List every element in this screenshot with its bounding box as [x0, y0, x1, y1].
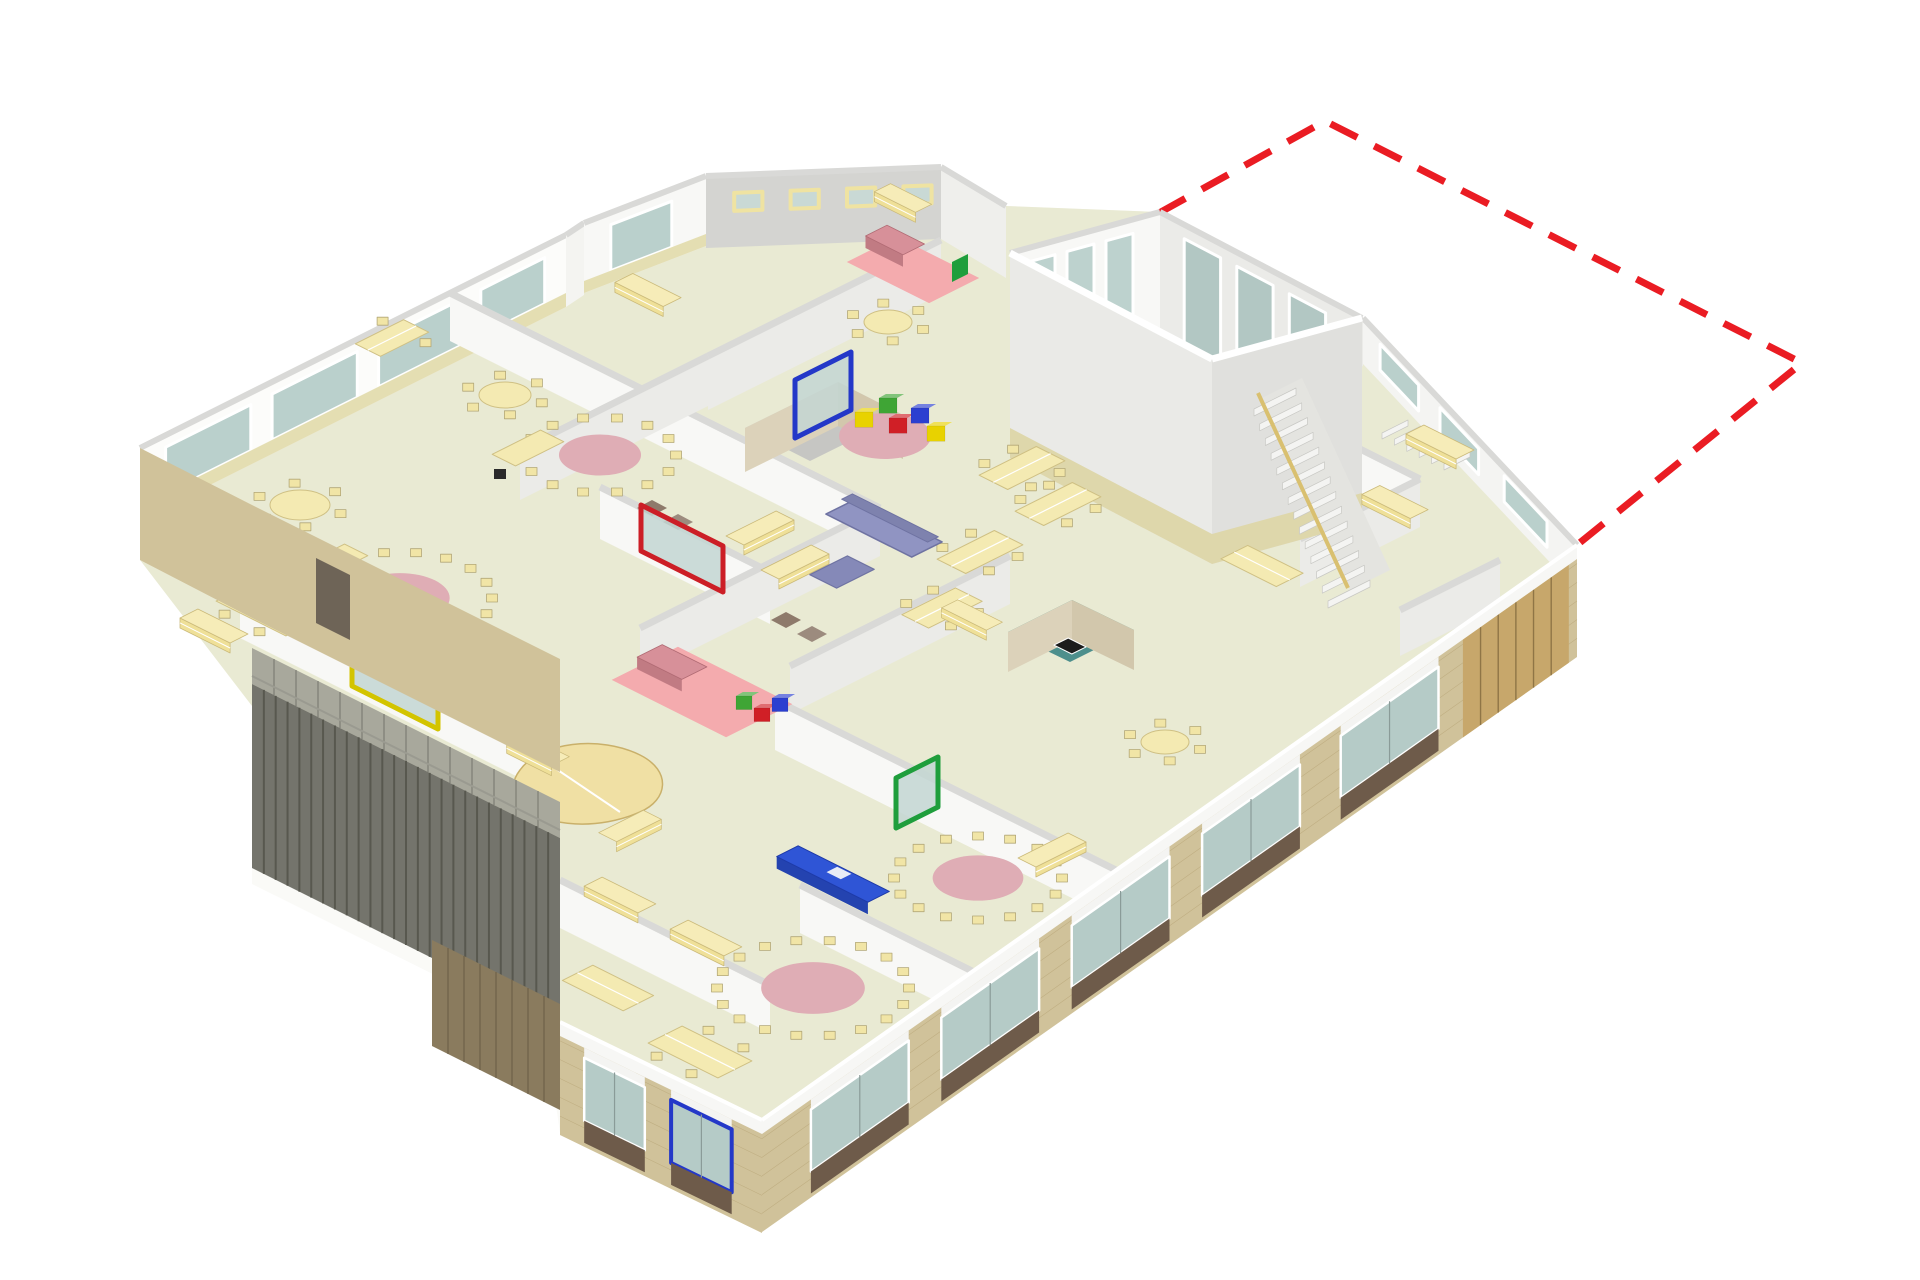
table-chair — [1054, 469, 1065, 477]
circle-chair — [1005, 835, 1016, 843]
circle-chair — [881, 1015, 892, 1023]
circle-chair — [717, 968, 728, 976]
circle-chair — [642, 481, 653, 489]
circle-chair — [895, 890, 906, 898]
circle-chair — [578, 488, 589, 496]
floorplan-scene — [0, 0, 1920, 1280]
round-table-chair — [300, 523, 311, 531]
round-table-chair — [852, 330, 863, 338]
circle-chair — [481, 610, 492, 618]
table-chair — [254, 628, 265, 636]
round-table-chair — [1155, 719, 1166, 727]
table-chair — [1015, 496, 1026, 504]
circle-chair — [481, 578, 492, 586]
circle-chair — [411, 549, 422, 557]
circle-chair — [1005, 913, 1016, 921]
circle-chair — [791, 1031, 802, 1039]
round-table-3 — [1141, 730, 1189, 754]
circle-chair — [487, 594, 498, 602]
circle-chair — [441, 554, 452, 562]
circle-chair — [940, 835, 951, 843]
circle-chair — [913, 904, 924, 912]
table-chair — [983, 567, 994, 575]
play-cube-0-1 — [879, 398, 897, 413]
north-wing-gray-wall-small-window-2 — [847, 188, 875, 207]
circle-chair — [526, 468, 537, 476]
table-chair — [979, 460, 990, 468]
circle-chair — [547, 421, 558, 429]
circle-chair — [1032, 904, 1043, 912]
circle-chair — [856, 942, 867, 950]
north-wing-gray-wall-small-window-1 — [791, 190, 819, 209]
pink-round-rug-3 — [933, 855, 1024, 900]
round-table-chair — [1164, 757, 1175, 765]
round-table-chair — [289, 479, 300, 487]
round-table-chair — [1190, 727, 1201, 735]
circle-chair — [734, 1015, 745, 1023]
circle-chair — [578, 414, 589, 422]
circle-chair — [824, 937, 835, 945]
circle-chair — [671, 451, 682, 459]
circle-chair — [465, 564, 476, 572]
table-chair — [1061, 519, 1072, 527]
round-table-chair — [887, 337, 898, 345]
round-table-2 — [864, 310, 912, 334]
table-chair — [1012, 553, 1023, 561]
circle-chair — [791, 937, 802, 945]
table-chair — [937, 544, 948, 552]
circle-chair — [717, 1000, 728, 1008]
circle-chair — [973, 916, 984, 924]
round-table-chair — [254, 492, 265, 500]
round-table-chair — [878, 299, 889, 307]
round-table-chair — [468, 403, 479, 411]
circle-chair — [760, 942, 771, 950]
round-table-chair — [1195, 745, 1206, 753]
table-chair — [703, 1026, 714, 1034]
circle-chair — [1057, 874, 1068, 882]
round-table-chair — [531, 379, 542, 387]
circle-chair — [889, 874, 900, 882]
table-chair — [1008, 445, 1019, 453]
round-table-chair — [536, 399, 547, 407]
round-table-chair — [913, 307, 924, 315]
circle-chair — [734, 953, 745, 961]
circle-chair — [1050, 890, 1061, 898]
circle-chair — [379, 549, 390, 557]
table-chair — [928, 586, 939, 594]
table-chair — [420, 339, 431, 347]
table-chair — [1090, 505, 1101, 513]
pink-round-rug-1 — [559, 434, 641, 475]
north-wing-gray-wall-small-window-0 — [734, 192, 762, 211]
circle-chair — [663, 435, 674, 443]
table-chair — [219, 610, 230, 618]
circle-chair — [611, 488, 622, 496]
circle-chair — [973, 832, 984, 840]
circle-chair — [547, 481, 558, 489]
circle-chair — [913, 844, 924, 852]
circle-chair — [881, 953, 892, 961]
circle-chair — [895, 858, 906, 866]
table-chair — [1025, 483, 1036, 491]
office-chair-1 — [494, 469, 506, 479]
table-chair — [738, 1044, 749, 1052]
floorplan-3d-view — [0, 0, 1920, 1280]
circle-chair — [898, 968, 909, 976]
round-table-chair — [848, 311, 859, 319]
round-table-chair — [463, 383, 474, 391]
table-chair — [686, 1070, 697, 1078]
play-cube-0-4 — [927, 426, 945, 441]
circle-chair — [898, 1000, 909, 1008]
circle-chair — [712, 984, 723, 992]
round-table-chair — [918, 325, 929, 333]
table-chair — [966, 529, 977, 537]
pink-round-rug-2 — [761, 962, 865, 1014]
round-table-chair — [1125, 731, 1136, 739]
play-cube-0-0 — [855, 412, 873, 427]
round-table-chair — [330, 488, 341, 496]
round-table-chair — [504, 411, 515, 419]
circle-chair — [856, 1026, 867, 1034]
circle-chair — [940, 913, 951, 921]
round-table-chair — [1129, 750, 1140, 758]
circle-chair — [760, 1026, 771, 1034]
play-cube-1-1 — [754, 708, 770, 722]
play-cube-1-0 — [736, 696, 752, 710]
play-cube-0-3 — [911, 408, 929, 423]
round-table-1 — [479, 382, 531, 408]
circle-chair — [663, 468, 674, 476]
circle-chair — [824, 1031, 835, 1039]
table-chair — [651, 1052, 662, 1060]
table-chair — [1044, 481, 1055, 489]
round-table-chair — [335, 510, 346, 518]
round-table-chair — [495, 371, 506, 379]
table-chair — [377, 317, 388, 325]
table-chair — [901, 600, 912, 608]
circle-chair — [642, 421, 653, 429]
round-table-0 — [270, 490, 330, 520]
play-cube-0-2 — [889, 418, 907, 433]
play-cube-1-2 — [772, 698, 788, 712]
circle-chair — [904, 984, 915, 992]
circle-chair — [611, 414, 622, 422]
